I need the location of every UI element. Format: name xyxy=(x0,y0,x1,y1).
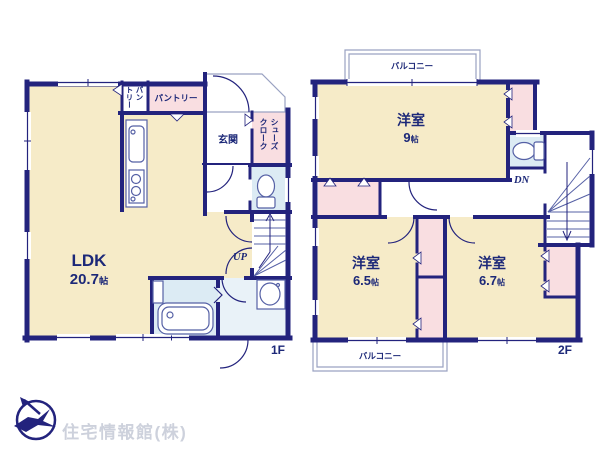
genkan-label: 玄関 xyxy=(218,131,238,146)
western65-size: 6.5帖 xyxy=(353,273,379,288)
closet-center-top xyxy=(417,217,445,277)
room-ldk xyxy=(27,82,122,338)
floor-label-2f: 2F xyxy=(558,343,572,357)
floor-label-1f: 1F xyxy=(271,343,285,357)
bird-silhouette xyxy=(14,409,56,432)
western9-label: 洋室 xyxy=(397,110,425,130)
closet-c xyxy=(545,245,578,297)
western67-size-unit: 帖 xyxy=(497,278,505,287)
western65-label: 洋室 xyxy=(352,253,380,273)
kitchen-counter-icon xyxy=(126,120,147,207)
room-ldk-south xyxy=(122,278,152,338)
vanity-icon xyxy=(257,280,285,309)
western67-size: 6.7帖 xyxy=(479,273,505,288)
toilet-1f-icon xyxy=(257,175,275,208)
back-door-arc xyxy=(220,340,248,368)
ldk-label: LDK xyxy=(72,250,107,271)
stairs-up-label: UP xyxy=(233,252,247,263)
compass-icon xyxy=(10,394,62,446)
room-hall-1f xyxy=(205,165,252,212)
pantry-narrow-label-left: トリー xyxy=(124,86,134,116)
bath-counter-icon xyxy=(153,281,163,303)
room-western67-ext xyxy=(545,297,578,340)
shoes-closet-label: シューズクローク xyxy=(258,118,280,154)
balcony-top-label: バルコニー xyxy=(391,60,433,72)
ldk-size-unit: 帖 xyxy=(99,276,108,286)
balcony-bottom-label: バルコニー xyxy=(359,350,401,362)
western65-size-unit: 帖 xyxy=(371,278,379,287)
western9-size-unit: 帖 xyxy=(411,135,419,144)
western65-size-value: 6.5 xyxy=(353,273,371,288)
company-watermark: 住宅情報館(株) xyxy=(62,418,187,443)
stairs-down-label: DN xyxy=(514,175,529,186)
western67-label: 洋室 xyxy=(478,253,506,273)
entrance-porch xyxy=(205,74,285,112)
floorplan-image: LDK 20.7帖 パン トリー パントリー 玄関 シューズクローク UP DN… xyxy=(0,0,600,450)
closet-b xyxy=(318,182,380,217)
pantry-narrow-label-right: パン xyxy=(134,86,144,112)
floorplan-drawing xyxy=(0,0,600,450)
ldk-size: 20.7帖 xyxy=(70,271,109,288)
pantry-label: パントリー xyxy=(155,92,198,104)
toilet-2f-icon xyxy=(513,142,544,160)
room-ldk-stair-side xyxy=(205,212,252,278)
ldk-size-value: 20.7 xyxy=(70,271,99,288)
western9-size: 9帖 xyxy=(403,130,418,145)
western67-size-value: 6.7 xyxy=(479,273,497,288)
